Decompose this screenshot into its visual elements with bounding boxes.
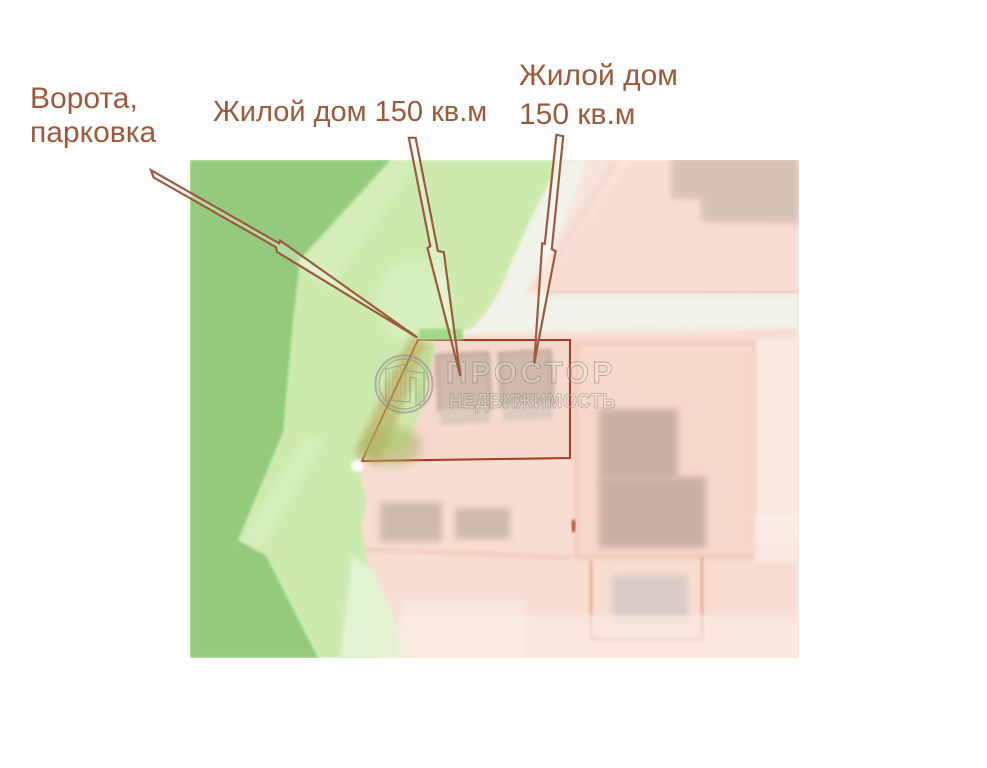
svg-text:НЕДВИЖИМОСТЬ: НЕДВИЖИМОСТЬ: [449, 389, 616, 413]
svg-text:ПРОСТОР: ПРОСТОР: [446, 356, 616, 390]
